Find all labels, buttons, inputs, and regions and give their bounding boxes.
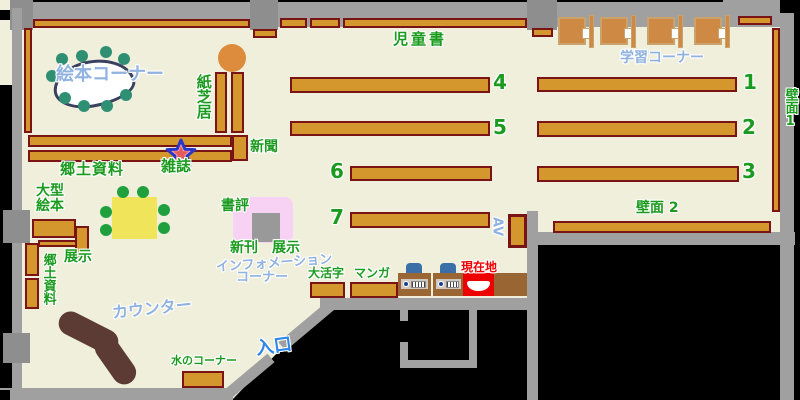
shelf-number-3: 3 bbox=[742, 161, 756, 182]
vestibule-wall-bottom bbox=[400, 360, 477, 368]
table-stool bbox=[100, 224, 112, 236]
left-pillar-2 bbox=[3, 333, 30, 363]
kamishibai-stool bbox=[218, 44, 246, 72]
table-stool bbox=[158, 222, 170, 234]
top-shelf-d bbox=[343, 18, 527, 28]
label-counter: カウンター bbox=[111, 297, 192, 322]
outside-southeast bbox=[538, 245, 783, 400]
label-kamishibai: 紙芝居 bbox=[195, 74, 211, 119]
opac-terminal bbox=[398, 273, 431, 296]
pillar2-shelf bbox=[532, 28, 553, 37]
east-bottom-wall bbox=[537, 232, 795, 245]
label-ogata-ehon-line2: 絵本 bbox=[36, 199, 64, 214]
label-zasshi: 雑誌 bbox=[161, 159, 191, 175]
ehon-stool bbox=[101, 100, 113, 112]
label-gakushu-corner: 学習コーナー bbox=[620, 51, 704, 66]
kamishibai-shelf-1 bbox=[215, 72, 227, 133]
study-desk-partition bbox=[589, 15, 594, 48]
mid-bottom-wall bbox=[320, 298, 528, 310]
hekimen2-wall-shelf bbox=[553, 221, 771, 233]
shelf-number-1: 1 bbox=[743, 72, 757, 93]
kyodo-left-shelf-1 bbox=[25, 243, 39, 276]
mid-vertical-wall bbox=[527, 211, 538, 400]
vestibule-wall-right bbox=[469, 305, 477, 368]
opac-terminal bbox=[433, 273, 463, 296]
genzaichi-arc bbox=[467, 281, 490, 291]
kyodo-left-shelf-2 bbox=[25, 278, 39, 309]
table-stool bbox=[137, 186, 149, 198]
shelf-5 bbox=[290, 121, 490, 136]
top-right-shelf bbox=[738, 16, 772, 25]
ehon-stool bbox=[120, 89, 132, 101]
shinkan-display-stand bbox=[252, 213, 280, 242]
label-tenji-shelf: 展示 bbox=[64, 250, 92, 265]
label-genzaichi: 現在地 bbox=[461, 261, 497, 274]
kamishibai-shelf-2 bbox=[231, 72, 244, 133]
left-pillar-1 bbox=[3, 210, 30, 243]
ogata-ehon-shelf-thin bbox=[38, 240, 77, 247]
counter-desk bbox=[90, 331, 141, 389]
label-av: AV bbox=[490, 217, 504, 236]
label-hekimen2: 壁面 2 bbox=[636, 201, 679, 216]
top-shelf-c bbox=[310, 18, 340, 28]
opac-panel bbox=[436, 279, 461, 289]
ehon-stool bbox=[78, 100, 90, 112]
label-information-line2: コーナー bbox=[236, 271, 288, 285]
ehon-room-left-shelf bbox=[24, 28, 32, 133]
genzaichi-marker bbox=[463, 273, 494, 296]
label-shohyo: 書評 bbox=[221, 199, 249, 214]
right-wall bbox=[780, 13, 794, 400]
top-pillar-2 bbox=[527, 0, 557, 30]
table-stool bbox=[100, 206, 112, 218]
opac-button bbox=[438, 281, 444, 287]
shelf-number-7: 7 bbox=[330, 207, 344, 228]
shelf-number-4: 4 bbox=[493, 72, 507, 93]
label-kyodo-shiryo: 郷土資料 bbox=[60, 162, 124, 178]
label-daikatsuji: 大活字 bbox=[308, 267, 344, 280]
vestibule-wall-left-upper bbox=[400, 305, 408, 321]
label-shimbun: 新聞 bbox=[250, 140, 278, 155]
top-right-wall bbox=[723, 0, 780, 14]
shelf-number-2: 2 bbox=[742, 117, 756, 138]
shelf-2 bbox=[537, 121, 737, 137]
study-desk-partition bbox=[631, 15, 636, 48]
label-kyodo-shiryo-vertical: 郷土資料 bbox=[41, 253, 55, 305]
opac-keyboard bbox=[446, 281, 459, 288]
pillar1-shelf bbox=[253, 29, 277, 38]
shelf-1 bbox=[537, 77, 737, 92]
top-shelf-b bbox=[280, 18, 307, 28]
label-jidosho: 児童書 bbox=[393, 32, 447, 48]
outside-left-notch bbox=[0, 10, 10, 20]
ehon-stool bbox=[76, 50, 88, 62]
label-ogata-ehon: 大型 絵本 bbox=[36, 184, 64, 213]
study-desk-partition bbox=[725, 15, 730, 48]
outside-right-edge bbox=[794, 13, 800, 400]
label-mizu-corner: 水のコーナー bbox=[171, 355, 237, 367]
bottom-wall bbox=[0, 388, 233, 400]
label-ogata-ehon-line1: 大型 bbox=[36, 184, 64, 199]
opac-keyboard bbox=[411, 281, 426, 288]
opac-panel bbox=[401, 279, 428, 289]
outside-bottom-left-corner bbox=[0, 390, 10, 400]
shelf-7 bbox=[350, 212, 490, 228]
shelf-3 bbox=[537, 166, 739, 182]
shelf-6 bbox=[350, 166, 492, 181]
ehon-stool bbox=[100, 46, 112, 58]
zasshi-shelf-row2 bbox=[28, 150, 232, 162]
av-shelf bbox=[508, 214, 527, 248]
zasshi-shelf-row1 bbox=[28, 135, 232, 147]
label-manga: マンガ bbox=[354, 267, 390, 280]
ehon-stool bbox=[59, 92, 71, 104]
opac-button bbox=[403, 281, 409, 287]
mizu-corner-shelf bbox=[182, 371, 224, 388]
hekimen1-wall-shelf bbox=[772, 28, 780, 212]
study-desk-partition bbox=[678, 15, 683, 48]
table-stool bbox=[117, 186, 129, 198]
shelf-number-6: 6 bbox=[330, 161, 344, 182]
ogata-ehon-shelf bbox=[32, 219, 76, 238]
reading-table bbox=[112, 197, 157, 239]
daikatsuji-shelf bbox=[310, 282, 345, 298]
label-hekimen1: 壁面1 bbox=[783, 88, 797, 129]
side-table bbox=[494, 273, 527, 296]
manga-shelf bbox=[350, 282, 398, 298]
shimbun-shelf bbox=[232, 135, 248, 161]
label-shinkan: 新刊 bbox=[230, 241, 258, 256]
top-shelf-a bbox=[33, 19, 250, 28]
top-pillar-1 bbox=[250, 0, 278, 30]
label-ehon-corner: 絵本コーナー bbox=[56, 66, 164, 85]
table-stool bbox=[158, 204, 170, 216]
library-floor-map: 児童書 紙芝居 新聞 雑誌 郷土資料 大型 絵本 展示 郷土資料 書評 新刊 展… bbox=[0, 0, 800, 400]
shelf-number-5: 5 bbox=[493, 117, 507, 138]
shelf-4 bbox=[290, 77, 490, 93]
